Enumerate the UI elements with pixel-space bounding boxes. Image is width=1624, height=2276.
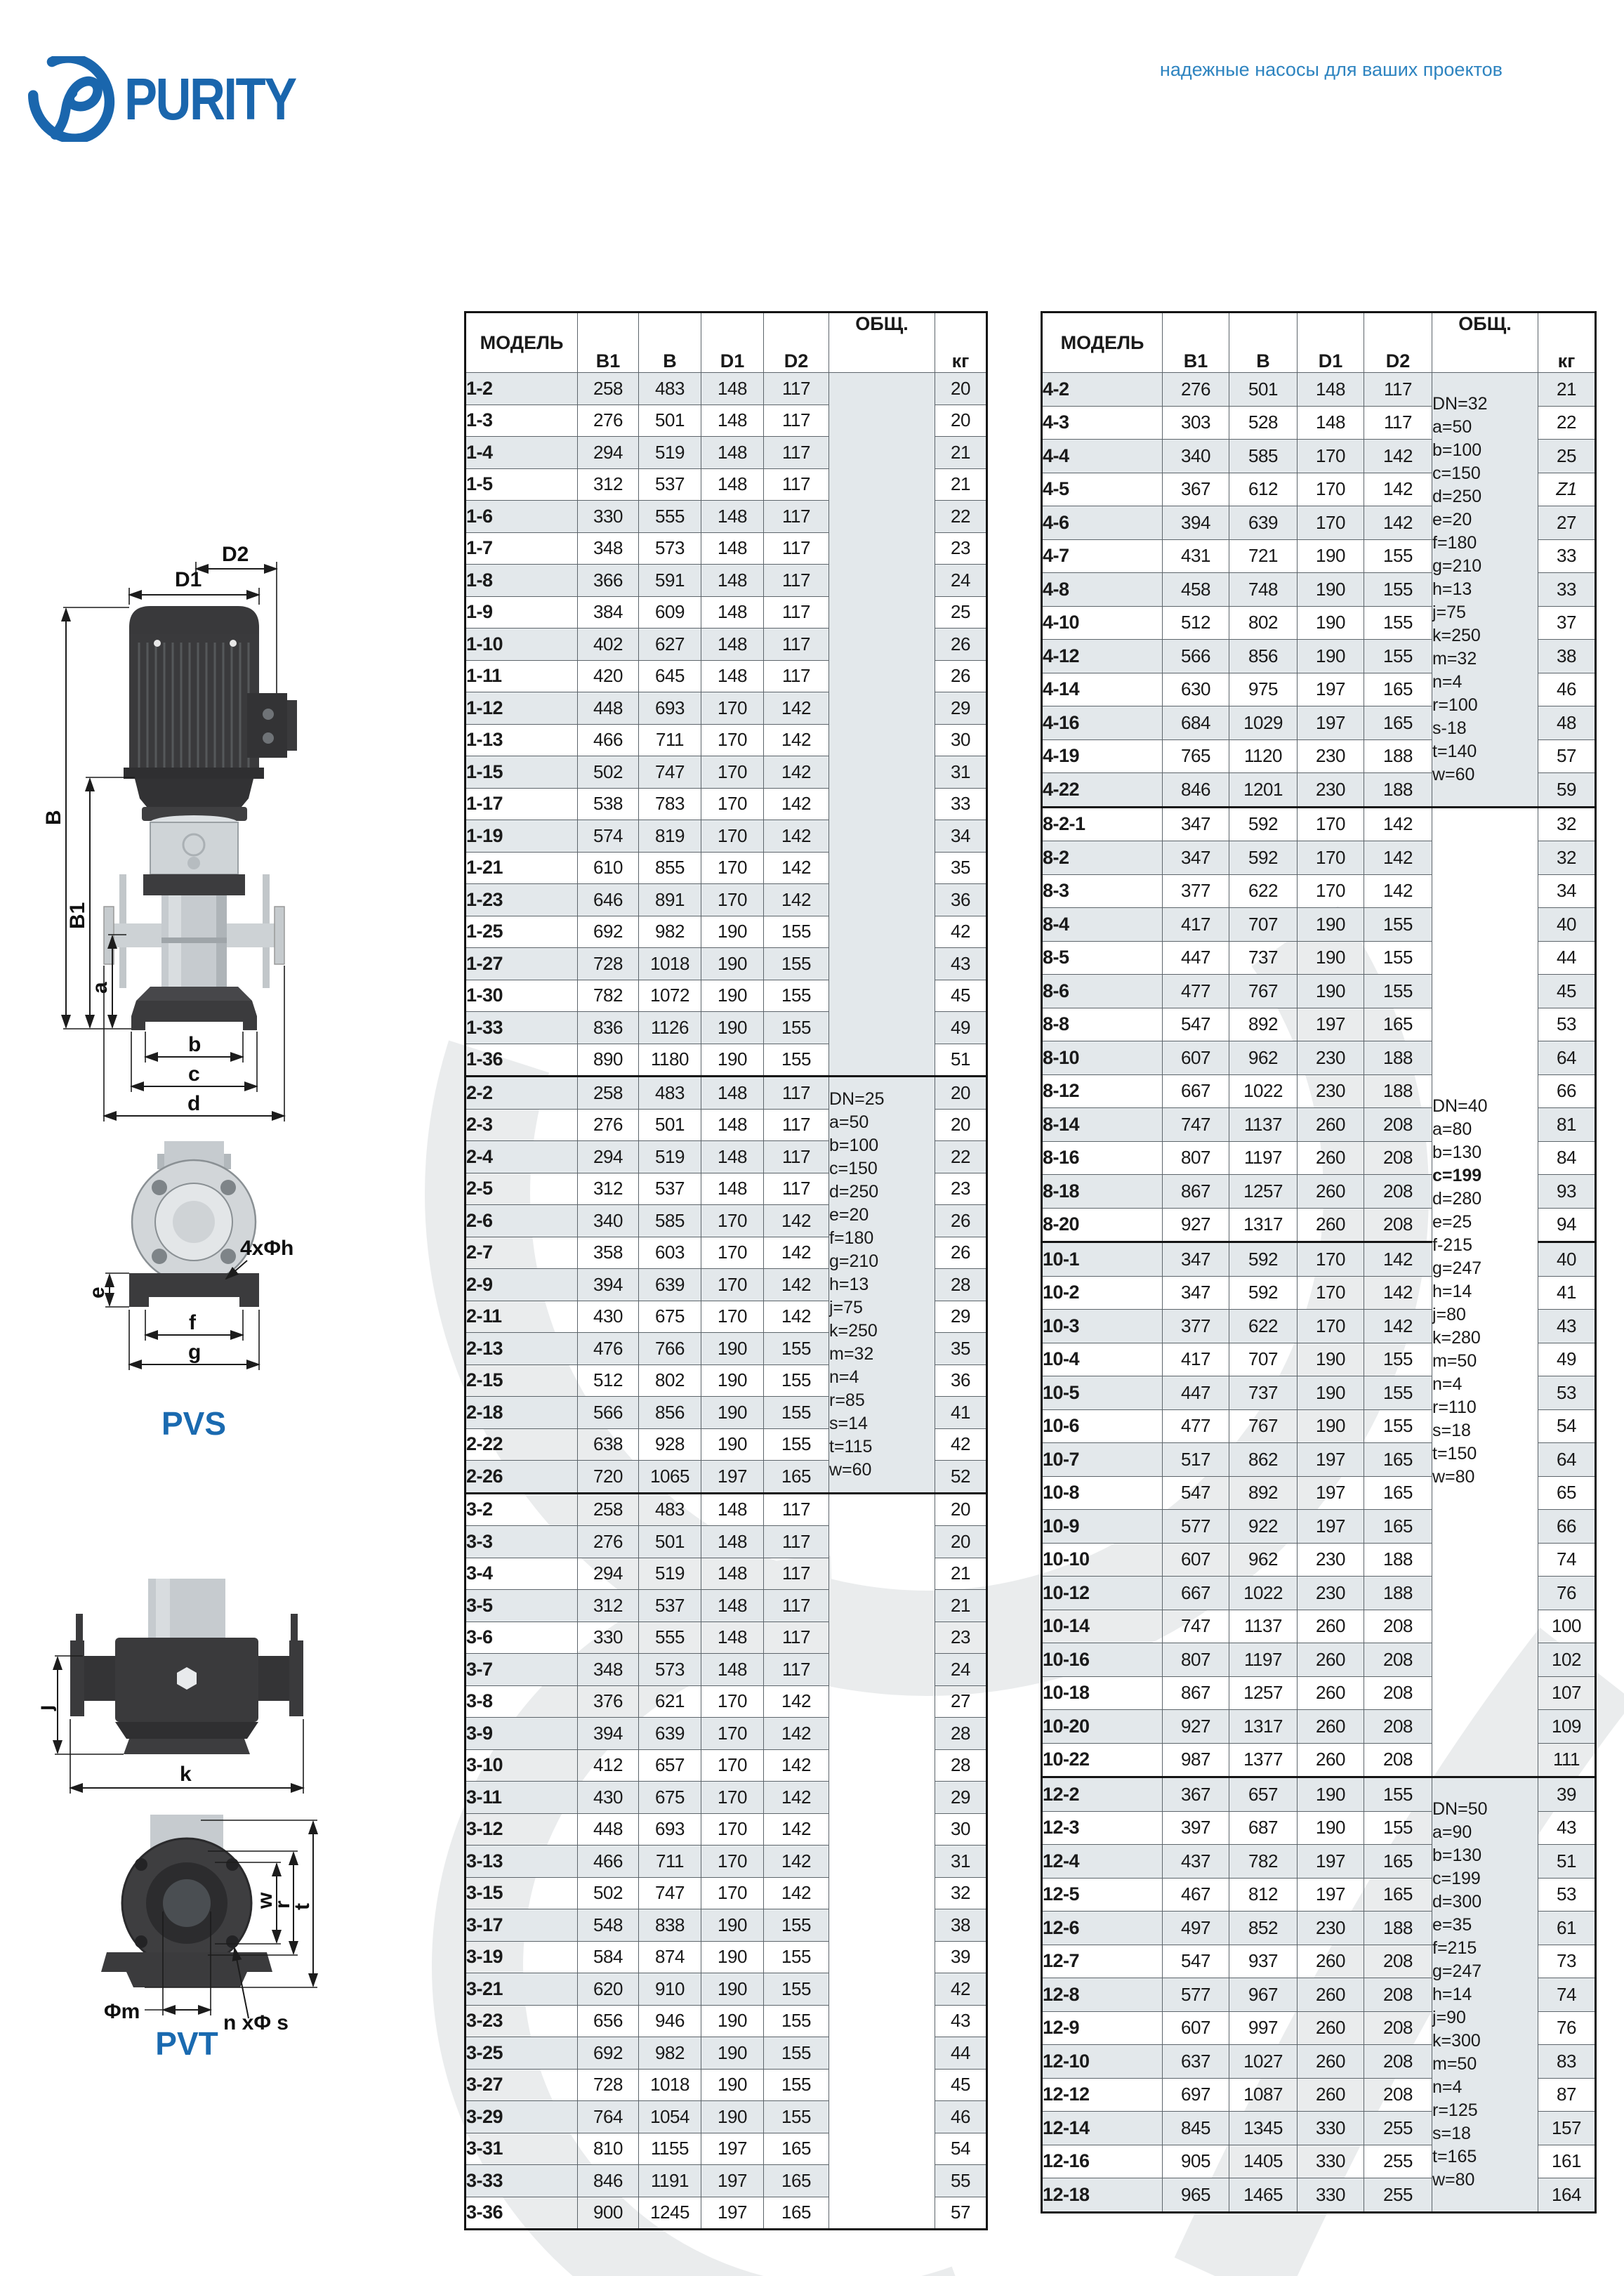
- dim-cell: 312: [578, 1590, 639, 1622]
- model-cell: 4-5: [1042, 473, 1163, 506]
- pvs-diagram: D2 D1: [45, 544, 326, 1457]
- dim-cell: 142: [764, 1237, 829, 1269]
- kg-cell: 20: [935, 1526, 987, 1558]
- col-header: ОБЩ.: [829, 313, 935, 373]
- dim-cell: 348: [578, 532, 639, 565]
- model-cell: 8-14: [1042, 1108, 1163, 1142]
- dim-cell: 142: [1364, 1242, 1432, 1277]
- kg-cell: 21: [935, 437, 987, 469]
- model-cell: 10-12: [1042, 1577, 1163, 1610]
- dim-cell: 190: [701, 2069, 764, 2101]
- dim-cell: 720: [578, 1461, 639, 1494]
- dim-cell: 230: [1298, 1912, 1364, 1945]
- dim-cell: 190: [701, 980, 764, 1012]
- kg-cell: 41: [935, 1397, 987, 1429]
- table-row: 12-2367657190155DN=50a=90b=130c=199d=300…: [1042, 1777, 1596, 1812]
- kg-cell: 20: [935, 404, 987, 437]
- kg-cell: 74: [1538, 1543, 1596, 1577]
- dim-cell: 155: [764, 1012, 829, 1044]
- model-cell: 1-2: [466, 373, 578, 405]
- dim-cell: 260: [1298, 1710, 1364, 1744]
- dim-cell: 142: [764, 1846, 829, 1878]
- dim-cell: 802: [639, 1364, 701, 1397]
- dim-cell: 190: [701, 1397, 764, 1429]
- model-cell: 1-21: [466, 852, 578, 884]
- table-row: 2-2258483148117DN=25a=50b=100c=150d=250e…: [466, 1077, 987, 1110]
- kg-cell: 48: [1538, 706, 1596, 740]
- dim-cell: 394: [578, 1269, 639, 1301]
- kg-cell: 164: [1538, 2178, 1596, 2213]
- dim-cell: 537: [639, 1173, 701, 1205]
- kg-cell: 39: [935, 1941, 987, 1973]
- dim-cell: 687: [1229, 1811, 1298, 1845]
- dim-cell: 397: [1163, 1811, 1229, 1845]
- kg-cell: 49: [935, 1012, 987, 1044]
- model-cell: 3-29: [466, 2101, 578, 2133]
- kg-cell: 29: [935, 1782, 987, 1814]
- notes-line: c=199: [1432, 1867, 1538, 1890]
- dim-cell: 230: [1298, 1041, 1364, 1075]
- dim-cell: 330: [578, 1622, 639, 1654]
- model-cell: 8-5: [1042, 941, 1163, 975]
- model-cell: 3-21: [466, 1973, 578, 2006]
- dim-cell: 584: [578, 1941, 639, 1973]
- kg-cell: 35: [935, 1333, 987, 1365]
- dim-cell: 366: [578, 565, 639, 597]
- dim-cell: 684: [1163, 706, 1229, 740]
- dim-cell: 420: [578, 660, 639, 692]
- model-cell: 12-6: [1042, 1912, 1163, 1945]
- model-cell: 10-16: [1042, 1643, 1163, 1677]
- kg-cell: 157: [1538, 2112, 1596, 2145]
- dim-cell: 555: [639, 1622, 701, 1654]
- dim-cell: 230: [1298, 1543, 1364, 1577]
- model-cell: 12-7: [1042, 1945, 1163, 1978]
- model-cell: 10-6: [1042, 1409, 1163, 1443]
- kg-cell: 54: [935, 2133, 987, 2165]
- model-cell: 10-4: [1042, 1343, 1163, 1376]
- kg-cell: 23: [935, 1622, 987, 1654]
- dim-cell: 142: [764, 884, 829, 916]
- notes-line: f-215: [1432, 1234, 1538, 1257]
- dim-cell: 838: [639, 1909, 701, 1942]
- dim-cell: 188: [1364, 1912, 1432, 1945]
- notes-line: j=75: [829, 1296, 935, 1320]
- kg-cell: 76: [1538, 2011, 1596, 2045]
- model-cell: 2-2: [466, 1077, 578, 1110]
- notes-line: r=110: [1432, 1396, 1538, 1419]
- notes-line: c=199: [1432, 1164, 1538, 1188]
- dim-cell: 1029: [1229, 706, 1298, 740]
- dim-cell: 340: [578, 1205, 639, 1237]
- notes-line: w=80: [1432, 1466, 1538, 1489]
- dim-cell: 737: [1229, 941, 1298, 975]
- model-cell: 10-2: [1042, 1276, 1163, 1310]
- dim-label: e: [86, 1287, 109, 1298]
- dim-cell: 148: [701, 532, 764, 565]
- brand-logo: PURITY: [25, 56, 328, 142]
- dim-cell: 330: [1298, 2178, 1364, 2213]
- dim-cell: 142: [764, 1205, 829, 1237]
- dim-cell: 165: [1364, 706, 1432, 740]
- notes-line: k=280: [1432, 1327, 1538, 1350]
- notes-line: b=130: [1432, 1844, 1538, 1867]
- dim-cell: 148: [701, 1141, 764, 1173]
- dim-cell: 946: [639, 2005, 701, 2037]
- dim-cell: 148: [1298, 406, 1364, 440]
- dim-cell: 188: [1364, 1543, 1432, 1577]
- dim-cell: 208: [1364, 1175, 1432, 1209]
- model-cell: 1-8: [466, 565, 578, 597]
- model-cell: 10-10: [1042, 1543, 1163, 1577]
- kg-cell: 66: [1538, 1074, 1596, 1108]
- dim-cell: 639: [639, 1718, 701, 1750]
- dim-cell: 170: [1298, 807, 1364, 841]
- model-cell: 3-4: [466, 1558, 578, 1590]
- kg-cell: 45: [935, 2069, 987, 2101]
- dim-cell: 170: [701, 1205, 764, 1237]
- col-header: МОДЕЛЬ: [1042, 313, 1163, 373]
- kg-cell: 32: [1538, 841, 1596, 875]
- dim-cell: 170: [701, 1718, 764, 1750]
- dim-cell: 155: [764, 1973, 829, 2006]
- kg-cell: 22: [1538, 406, 1596, 440]
- dim-cell: 922: [1229, 1510, 1298, 1544]
- dim-cell: 607: [1163, 2011, 1229, 2045]
- dim-cell: 155: [1364, 539, 1432, 573]
- model-cell: 2-18: [466, 1397, 578, 1429]
- col-header: ОБЩ.: [1432, 313, 1538, 373]
- model-cell: 4-16: [1042, 706, 1163, 740]
- dim-cell: 466: [578, 724, 639, 756]
- dim-cell: 1201: [1229, 773, 1298, 808]
- dim-cell: 845: [1163, 2112, 1229, 2145]
- dim-cell: 747: [639, 1877, 701, 1909]
- dim-cell: 117: [764, 1654, 829, 1686]
- dim-cell: 819: [639, 820, 701, 853]
- dim-cell: 260: [1298, 1108, 1364, 1142]
- dim-cell: 574: [578, 820, 639, 853]
- model-cell: 4-12: [1042, 640, 1163, 673]
- dim-cell: 142: [764, 852, 829, 884]
- dim-cell: 502: [578, 1877, 639, 1909]
- dim-cell: 656: [578, 2005, 639, 2037]
- kg-cell: 41: [1538, 1276, 1596, 1310]
- dim-cell: 190: [1298, 1409, 1364, 1443]
- kg-cell: 31: [935, 756, 987, 789]
- model-cell: 3-36: [466, 2197, 578, 2230]
- dim-cell: 312: [578, 1173, 639, 1205]
- dim-cell: 412: [578, 1749, 639, 1782]
- kg-cell: 26: [935, 629, 987, 661]
- dim-cell: 142: [1364, 807, 1432, 841]
- model-cell: 3-7: [466, 1654, 578, 1686]
- dim-cell: 188: [1364, 1074, 1432, 1108]
- dim-cell: 276: [578, 404, 639, 437]
- model-cell: 4-14: [1042, 673, 1163, 706]
- dim-cell: 155: [764, 2037, 829, 2070]
- model-cell: 3-27: [466, 2069, 578, 2101]
- dim-cell: 537: [639, 1590, 701, 1622]
- model-cell: 2-13: [466, 1333, 578, 1365]
- dim-cell: 165: [1364, 1443, 1432, 1477]
- dim-cell: 117: [764, 629, 829, 661]
- model-cell: 10-1: [1042, 1242, 1163, 1277]
- dim-cell: 165: [764, 2197, 829, 2230]
- dim-cell: 117: [764, 1141, 829, 1173]
- kg-cell: 100: [1538, 1610, 1596, 1643]
- model-cell: 12-10: [1042, 2045, 1163, 2079]
- kg-cell: 45: [935, 980, 987, 1012]
- dim-cell: 142: [764, 756, 829, 789]
- dim-cell: 975: [1229, 673, 1298, 706]
- dim-cell: 477: [1163, 975, 1229, 1008]
- dim-cell: 117: [764, 1109, 829, 1141]
- dim-cell: 190: [701, 2101, 764, 2133]
- notes-line: h=14: [1432, 1983, 1538, 2006]
- notes-line: e=35: [1432, 1914, 1538, 1937]
- dim-cell: 707: [1229, 1343, 1298, 1376]
- dim-cell: 348: [578, 1654, 639, 1686]
- dim-cell: 646: [578, 884, 639, 916]
- dim-cell: 148: [701, 1654, 764, 1686]
- dim-cell: 190: [1298, 1811, 1364, 1845]
- dim-cell: 155: [1364, 975, 1432, 1008]
- dim-cell: 512: [578, 1364, 639, 1397]
- kg-cell: 84: [1538, 1141, 1596, 1175]
- dim-cell: 612: [1229, 473, 1298, 506]
- kg-cell: 43: [1538, 1811, 1596, 1845]
- dim-cell: 190: [1298, 941, 1364, 975]
- dim-cell: 258: [578, 1077, 639, 1110]
- kg-cell: 29: [935, 1301, 987, 1333]
- dim-cell: 1065: [639, 1461, 701, 1494]
- dim-cell: 577: [1163, 1510, 1229, 1544]
- dim-cell: 1137: [1229, 1610, 1298, 1643]
- model-cell: 1-12: [466, 692, 578, 725]
- dim-cell: 603: [639, 1237, 701, 1269]
- dim-label: Φm: [104, 2000, 140, 2023]
- col-header: B1: [1163, 313, 1229, 373]
- kg-cell: 109: [1538, 1710, 1596, 1744]
- notes-line: g=210: [829, 1250, 935, 1273]
- dim-cell: 148: [701, 1109, 764, 1141]
- dim-cell: 208: [1364, 1978, 1432, 2012]
- dim-cell: 728: [578, 948, 639, 980]
- dim-cell: 170: [1298, 1242, 1364, 1277]
- dim-cell: 117: [764, 1077, 829, 1110]
- kg-cell: 22: [935, 501, 987, 533]
- model-cell: 1-33: [466, 1012, 578, 1044]
- dim-cell: 165: [764, 2133, 829, 2165]
- dim-cell: 165: [1364, 1510, 1432, 1544]
- dim-cell: 528: [1229, 406, 1298, 440]
- dim-cell: 836: [578, 1012, 639, 1044]
- dim-cell: 190: [1298, 1343, 1364, 1376]
- dim-cell: 748: [1229, 573, 1298, 607]
- kg-cell: 26: [935, 1205, 987, 1237]
- dim-cell: 148: [701, 373, 764, 405]
- dim-cell: 1257: [1229, 1175, 1298, 1209]
- dim-cell: 190: [1298, 573, 1364, 607]
- kg-cell: 28: [935, 1749, 987, 1782]
- notes-line: d=250: [1432, 485, 1538, 508]
- model-cell: 8-12: [1042, 1074, 1163, 1108]
- dim-cell: 142: [764, 724, 829, 756]
- obsh-notes-cell: DN=50a=90b=130c=199d=300e=35f=215g=247h=…: [1432, 1777, 1538, 2213]
- kg-cell: 43: [935, 2005, 987, 2037]
- dim-cell: 573: [639, 1654, 701, 1686]
- dim-cell: 155: [764, 1364, 829, 1397]
- dim-cell: 188: [1364, 1577, 1432, 1610]
- dim-cell: 367: [1163, 1777, 1229, 1812]
- dim-cell: 208: [1364, 1610, 1432, 1643]
- dim-cell: 148: [701, 501, 764, 533]
- dim-cell: 900: [578, 2197, 639, 2230]
- dim-cell: 855: [639, 852, 701, 884]
- dim-cell: 142: [764, 1718, 829, 1750]
- dim-cell: 208: [1364, 2011, 1432, 2045]
- dim-cell: 260: [1298, 2011, 1364, 2045]
- dim-cell: 142: [1364, 841, 1432, 875]
- model-cell: 1-17: [466, 788, 578, 820]
- model-cell: 10-18: [1042, 1676, 1163, 1710]
- dim-cell: 783: [639, 788, 701, 820]
- dim-cell: 230: [1298, 773, 1364, 808]
- col-header: МОДЕЛЬ: [466, 313, 578, 373]
- dim-cell: 117: [764, 1173, 829, 1205]
- dim-cell: 767: [1229, 1409, 1298, 1443]
- dim-cell: 1405: [1229, 2145, 1298, 2178]
- dim-cell: 693: [639, 692, 701, 725]
- dimensions-table-right: МОДЕЛЬB1BD1D2ОБЩ.кг4-2276501148117DN=32a…: [1041, 311, 1597, 2213]
- dim-cell: 148: [701, 404, 764, 437]
- dim-cell: 170: [1298, 440, 1364, 473]
- dim-cell: 165: [1364, 673, 1432, 706]
- dim-cell: 512: [1163, 606, 1229, 640]
- dim-cell: 117: [764, 501, 829, 533]
- col-header: D1: [1298, 313, 1364, 373]
- model-cell: 3-15: [466, 1877, 578, 1909]
- dim-cell: 148: [701, 1526, 764, 1558]
- model-cell: 4-22: [1042, 773, 1163, 808]
- notes-line: s-18: [1432, 717, 1538, 740]
- dim-label: f: [189, 1311, 197, 1334]
- model-cell: 1-27: [466, 948, 578, 980]
- dim-label: D1: [175, 568, 202, 591]
- dim-cell: 630: [1163, 673, 1229, 706]
- col-header: D2: [764, 313, 829, 373]
- kg-cell: 55: [935, 2165, 987, 2197]
- notes-line: s=14: [829, 1412, 935, 1435]
- dim-cell: 188: [1364, 773, 1432, 808]
- dim-cell: 448: [578, 692, 639, 725]
- notes-line: b=100: [1432, 439, 1538, 462]
- kg-cell: 45: [1538, 975, 1596, 1008]
- dim-cell: 117: [764, 596, 829, 629]
- dim-cell: 501: [1229, 373, 1298, 407]
- dim-cell: 117: [764, 1622, 829, 1654]
- kg-cell: 29: [935, 692, 987, 725]
- dim-cell: 737: [1229, 1376, 1298, 1410]
- dim-cell: 155: [764, 1941, 829, 1973]
- model-cell: 3-10: [466, 1749, 578, 1782]
- dim-cell: 117: [764, 437, 829, 469]
- notes-line: r=85: [829, 1389, 935, 1412]
- dim-cell: 190: [1298, 539, 1364, 573]
- dim-cell: 155: [764, 2005, 829, 2037]
- dim-cell: 255: [1364, 2112, 1432, 2145]
- dim-cell: 148: [701, 565, 764, 597]
- kg-cell: 38: [1538, 640, 1596, 673]
- dim-cell: 627: [639, 629, 701, 661]
- model-cell: 8-8: [1042, 1008, 1163, 1041]
- model-cell: 4-6: [1042, 506, 1163, 540]
- dim-label: D2: [222, 544, 249, 566]
- dim-cell: 117: [764, 373, 829, 405]
- dim-cell: 711: [639, 724, 701, 756]
- dim-cell: 188: [1364, 739, 1432, 773]
- dim-cell: 591: [639, 565, 701, 597]
- dim-cell: 448: [578, 1813, 639, 1846]
- notes-line: e=20: [1432, 508, 1538, 532]
- dim-cell: 891: [639, 884, 701, 916]
- dim-cell: 142: [1364, 506, 1432, 540]
- dim-cell: 155: [1364, 1376, 1432, 1410]
- dim-cell: 384: [578, 596, 639, 629]
- model-cell: 2-7: [466, 1237, 578, 1269]
- obsh-notes-cell: DN=25a=50b=100c=150d=250e=20f=180g=210h=…: [829, 1077, 935, 1494]
- dim-cell: 637: [1163, 2045, 1229, 2079]
- dim-cell: 170: [701, 1685, 764, 1718]
- pvs-caption: PVS: [161, 1405, 226, 1442]
- dim-cell: 377: [1163, 1310, 1229, 1343]
- col-header: B: [1229, 313, 1298, 373]
- kg-cell: 36: [935, 884, 987, 916]
- dim-cell: 1087: [1229, 2078, 1298, 2112]
- dim-cell: 197: [701, 1461, 764, 1494]
- model-cell: 10-9: [1042, 1510, 1163, 1544]
- model-cell: 2-26: [466, 1461, 578, 1494]
- dim-cell: 170: [1298, 841, 1364, 875]
- kg-cell: 102: [1538, 1643, 1596, 1677]
- dim-cell: 190: [1298, 640, 1364, 673]
- model-cell: 3-23: [466, 2005, 578, 2037]
- notes-line: d=280: [1432, 1188, 1538, 1211]
- dim-cell: 197: [1298, 1476, 1364, 1510]
- dim-label: 4xΦh: [240, 1237, 293, 1260]
- model-cell: 1-19: [466, 820, 578, 853]
- dim-label: B1: [66, 902, 89, 929]
- dim-cell: 148: [701, 1590, 764, 1622]
- kg-cell: 40: [1538, 908, 1596, 942]
- dim-cell: 501: [639, 1109, 701, 1141]
- dim-cell: 1180: [639, 1044, 701, 1077]
- model-cell: 1-10: [466, 629, 578, 661]
- dim-cell: 675: [639, 1301, 701, 1333]
- dim-cell: 294: [578, 1558, 639, 1590]
- dim-cell: 890: [578, 1044, 639, 1077]
- dim-label: n xΦ s: [223, 2011, 289, 2034]
- model-cell: 1-11: [466, 660, 578, 692]
- dim-cell: 1027: [1229, 2045, 1298, 2079]
- dim-cell: 340: [1163, 440, 1229, 473]
- dim-cell: 812: [1229, 1878, 1298, 1912]
- notes-line: t=115: [829, 1435, 935, 1459]
- dim-cell: 170: [701, 1237, 764, 1269]
- kg-cell: 37: [1538, 606, 1596, 640]
- kg-cell: 65: [1538, 1476, 1596, 1510]
